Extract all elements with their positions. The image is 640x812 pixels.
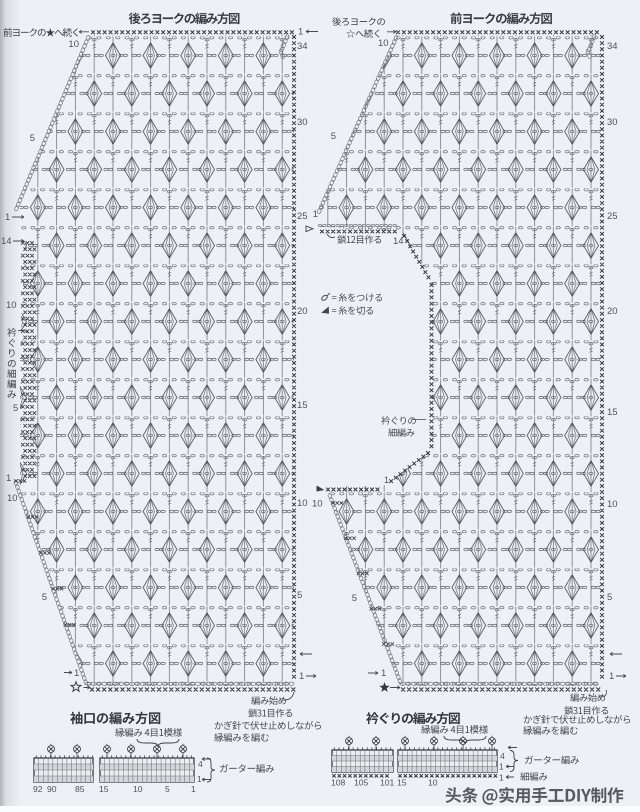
svg-text:5: 5 (352, 593, 357, 604)
svg-text:34: 34 (297, 41, 308, 52)
svg-text:5: 5 (30, 133, 35, 144)
svg-text:14: 14 (1, 236, 12, 247)
svg-text:5: 5 (331, 131, 336, 142)
svg-text:1: 1 (298, 27, 303, 38)
svg-text:30: 30 (297, 117, 308, 128)
svg-text:34: 34 (607, 41, 618, 52)
svg-text:1: 1 (191, 784, 196, 794)
svg-text:25: 25 (297, 211, 308, 222)
svg-text:14: 14 (393, 236, 404, 247)
svg-text:10: 10 (378, 38, 389, 49)
svg-text:101: 101 (380, 778, 395, 788)
svg-text:5: 5 (297, 590, 302, 601)
svg-text:105: 105 (354, 778, 369, 788)
svg-text:1: 1 (197, 774, 202, 784)
svg-text:4: 4 (500, 751, 505, 761)
svg-text:4: 4 (198, 759, 203, 769)
svg-text:5: 5 (165, 784, 170, 794)
svg-text:5: 5 (607, 592, 612, 603)
svg-text:85: 85 (75, 784, 85, 794)
svg-text:1: 1 (313, 209, 318, 220)
svg-text:108: 108 (331, 778, 346, 788)
svg-text:25: 25 (607, 211, 618, 222)
svg-text:10: 10 (133, 784, 143, 794)
svg-text:10: 10 (297, 498, 308, 509)
svg-text:1: 1 (384, 475, 389, 485)
svg-text:1: 1 (499, 773, 504, 783)
svg-text:20: 20 (297, 306, 308, 317)
svg-text:15: 15 (397, 778, 407, 788)
svg-text:15: 15 (607, 407, 618, 418)
svg-text:15: 15 (297, 400, 308, 411)
svg-text:10: 10 (6, 300, 17, 311)
svg-text:92: 92 (33, 784, 43, 794)
svg-text:15: 15 (99, 784, 109, 794)
svg-text:20: 20 (607, 306, 618, 317)
svg-text:10: 10 (68, 39, 79, 50)
svg-text:1: 1 (381, 668, 386, 679)
svg-text:90: 90 (47, 784, 57, 794)
svg-text:10: 10 (428, 778, 438, 788)
svg-text:30: 30 (607, 117, 618, 128)
svg-text:10: 10 (312, 499, 323, 510)
svg-text:10: 10 (607, 499, 618, 510)
svg-text:10: 10 (7, 493, 18, 504)
svg-text:1: 1 (499, 762, 504, 772)
svg-text:1: 1 (6, 473, 11, 484)
svg-text:1: 1 (299, 671, 304, 682)
svg-text:1: 1 (74, 668, 79, 679)
svg-text:5: 5 (42, 592, 47, 603)
svg-text:1: 1 (609, 671, 614, 682)
svg-text:1: 1 (5, 212, 10, 223)
svg-text:5: 5 (13, 403, 18, 414)
